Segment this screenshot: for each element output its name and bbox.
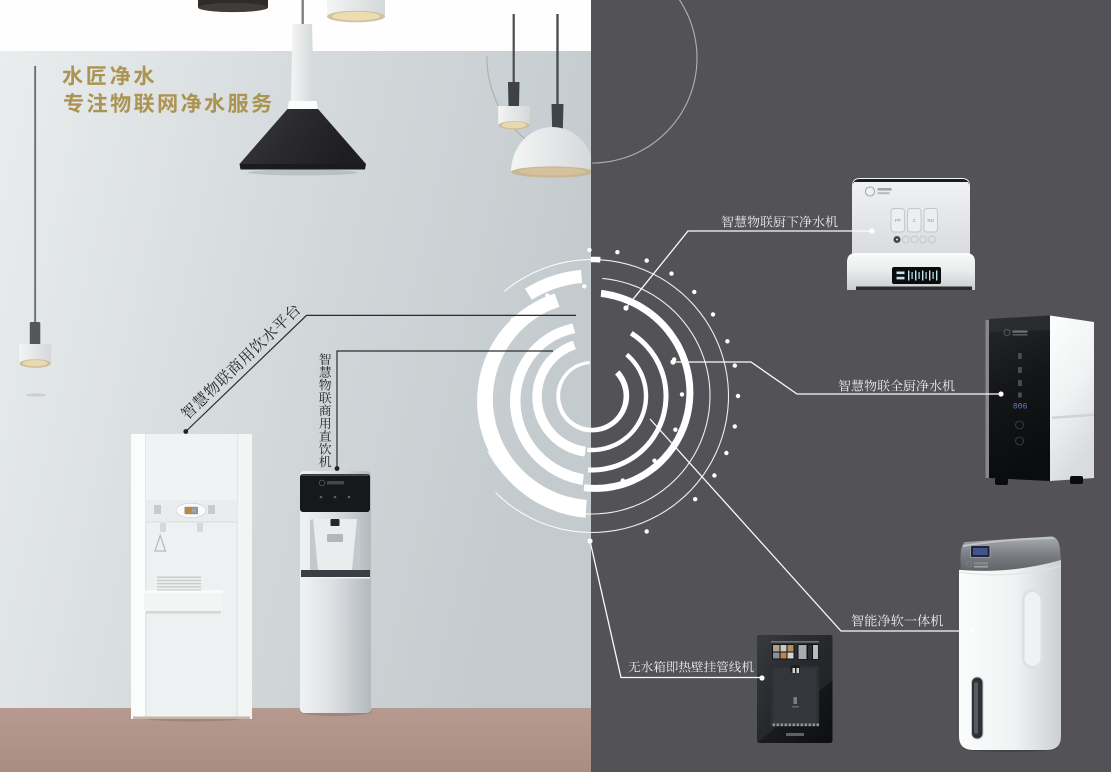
svg-text:006: 006 [1013,403,1028,412]
svg-text:RO: RO [927,218,934,223]
svg-text:PP: PP [895,218,901,223]
